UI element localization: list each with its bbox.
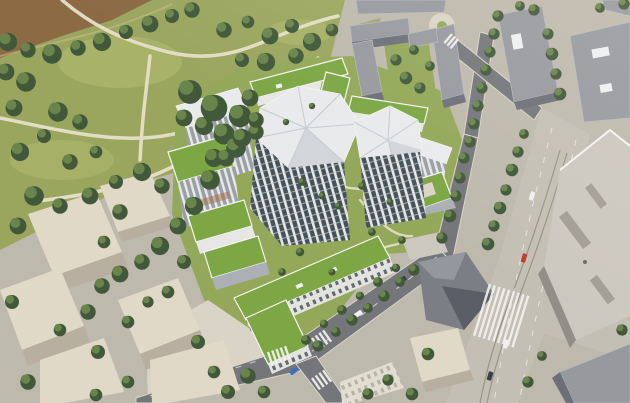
aerial-rendering: Aerial architectural rendering of a resi… (0, 0, 630, 403)
sun-haze (0, 0, 630, 403)
